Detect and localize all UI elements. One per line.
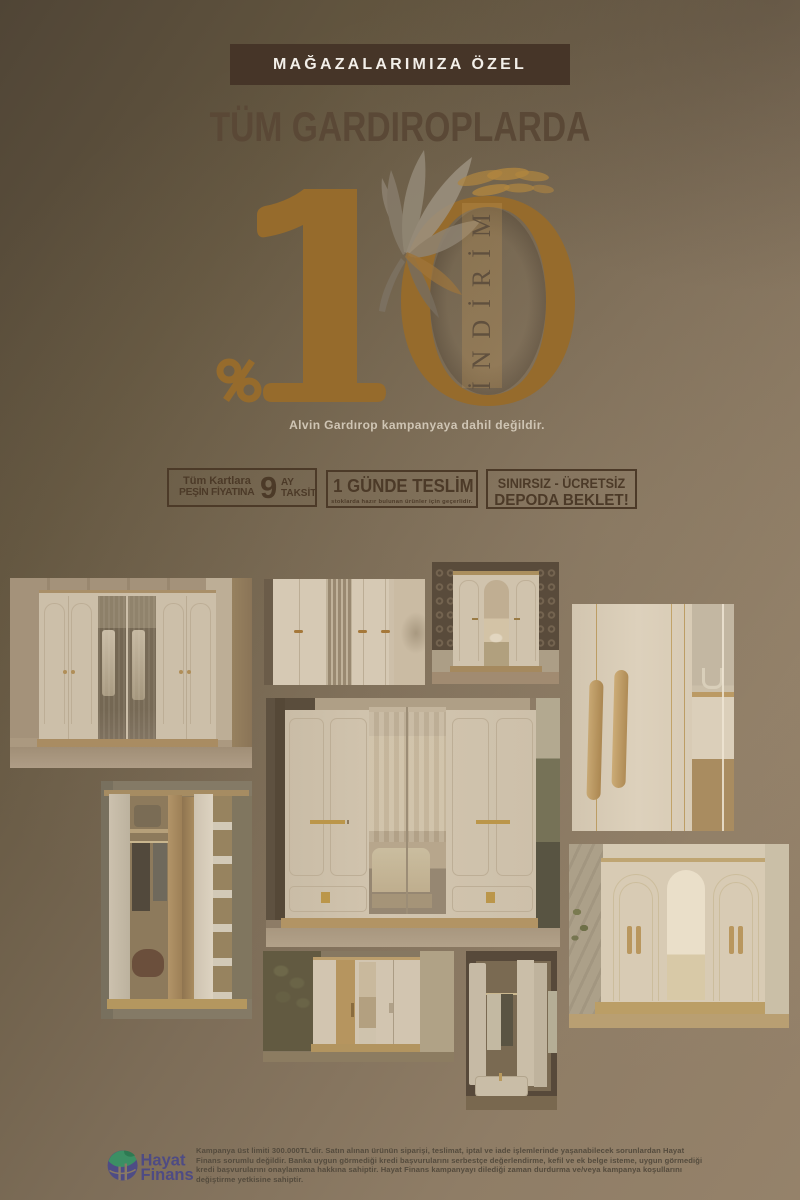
svg-text:Finans: Finans [141,1166,194,1184]
